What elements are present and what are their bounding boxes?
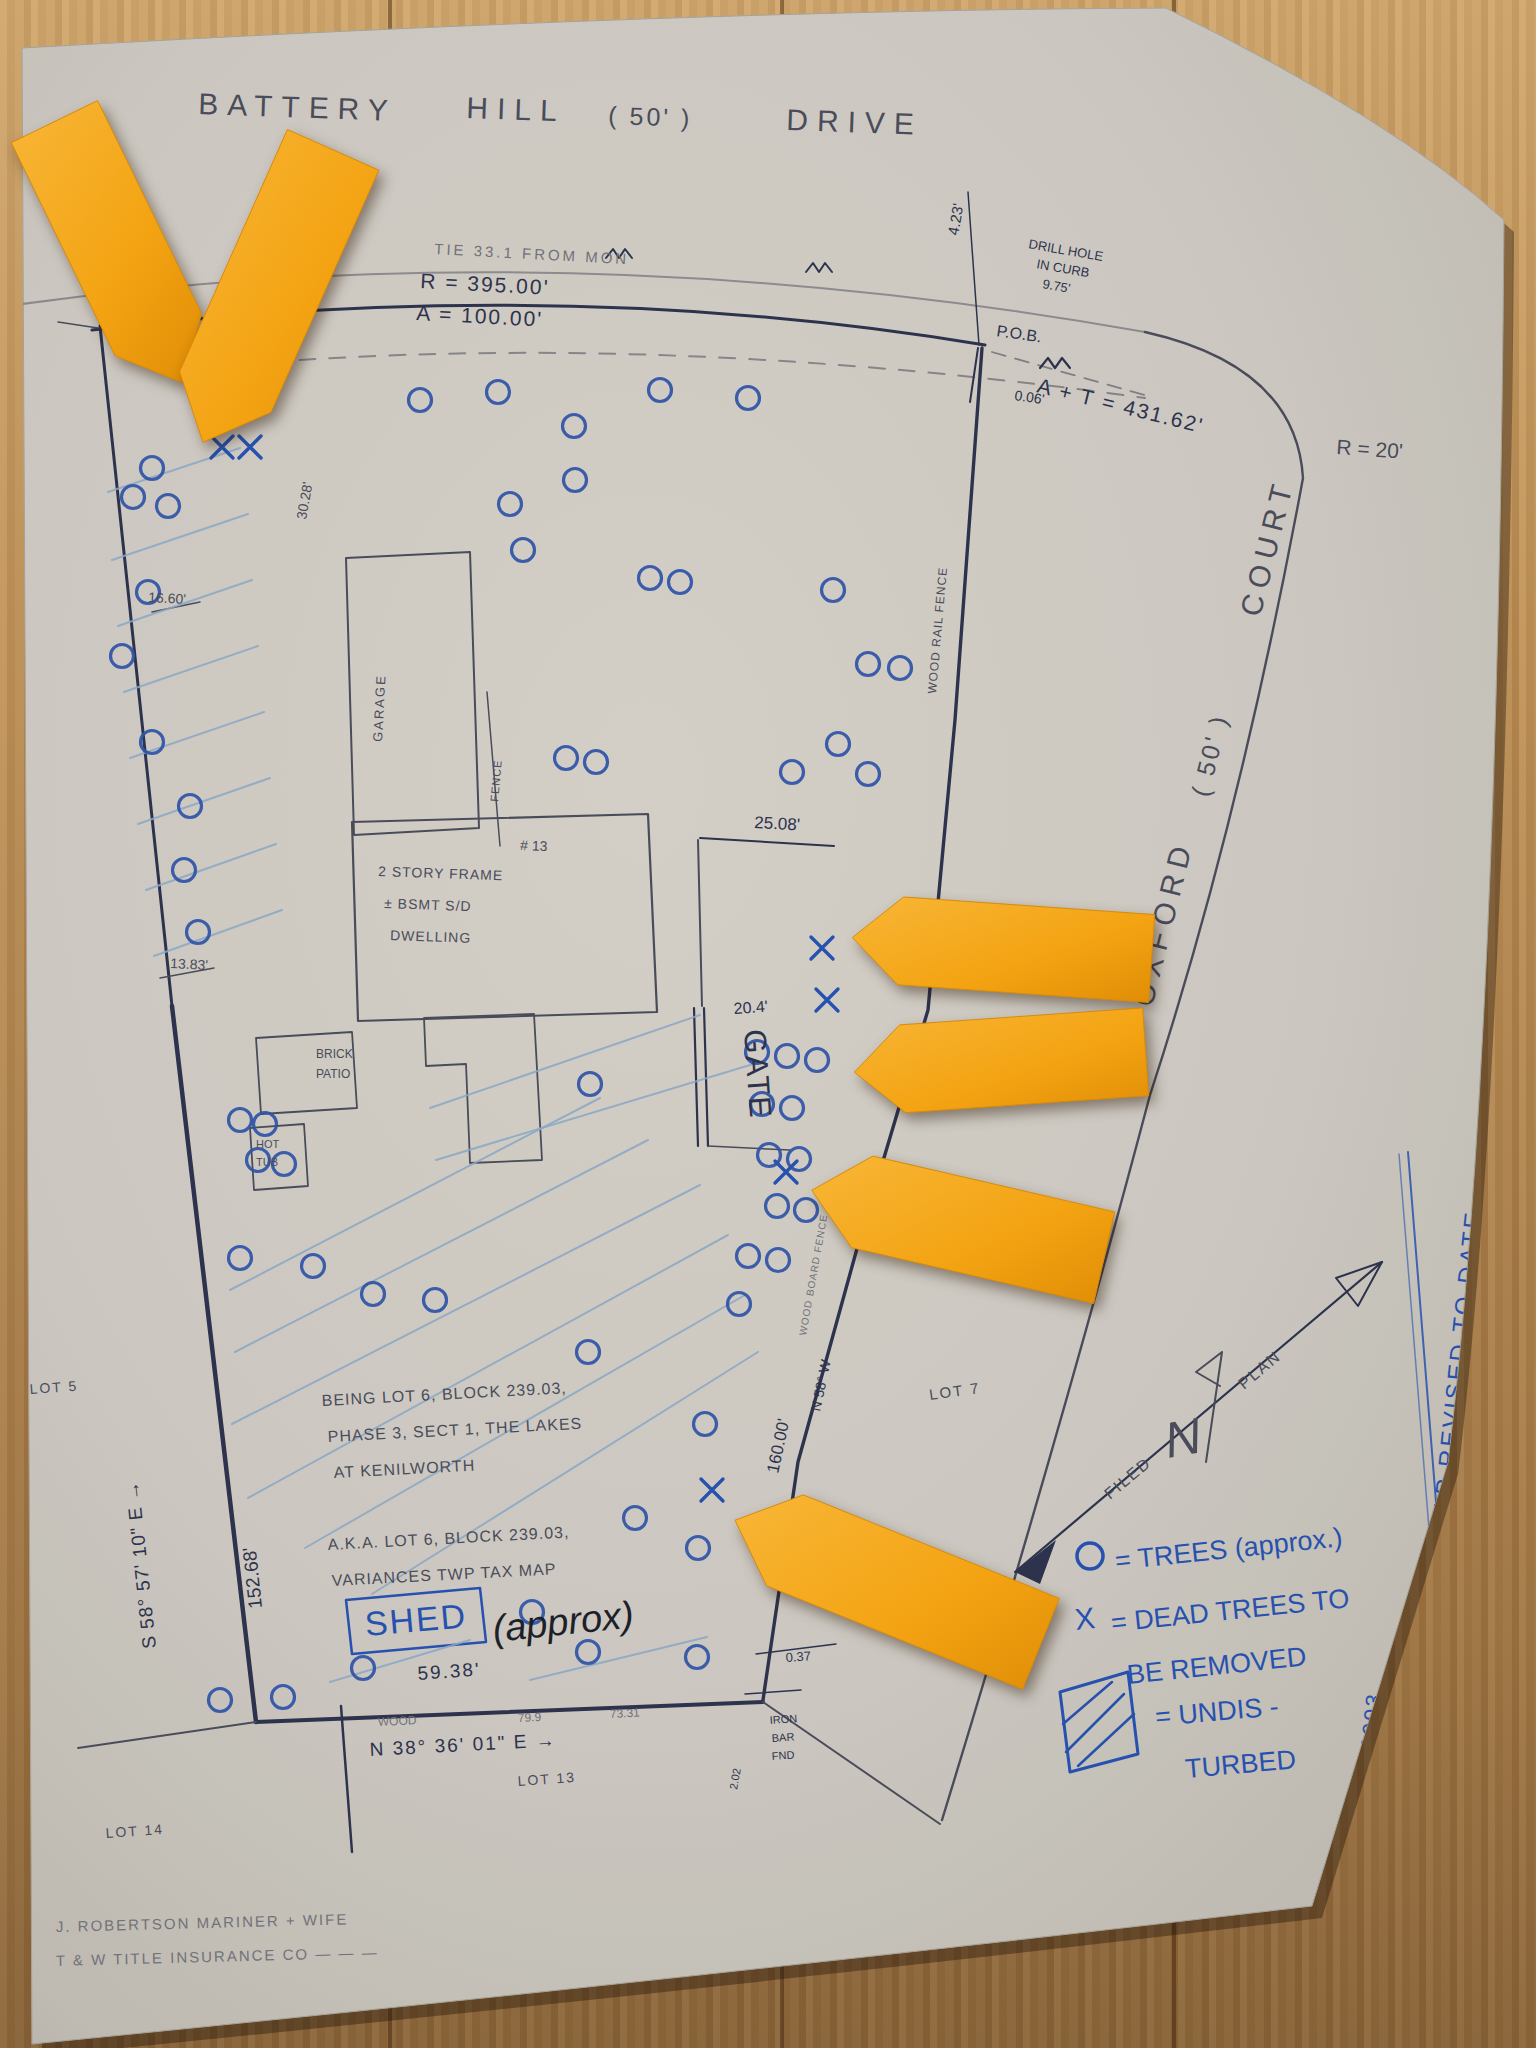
iron-bar-1: IRON [769, 1712, 797, 1726]
house-number: # 13 [520, 837, 548, 854]
brick-patio-2: PATIO [316, 1067, 350, 1081]
iron-bar-3: FND [771, 1748, 794, 1762]
street-name-drive: DRIVE [786, 103, 924, 141]
dim-79-9: 79.9 [517, 1710, 541, 1725]
street-name-battery: BATTERY [198, 87, 398, 127]
dim-13-83: 13.83' [170, 955, 209, 973]
dim-0-37: 0.37 [785, 1648, 811, 1665]
gate-label: GATE [737, 1028, 778, 1120]
dim-20-4: 20.4' [733, 998, 768, 1017]
legend-dead-symbol: X [1073, 1601, 1096, 1636]
street-name-hill: HILL [466, 91, 566, 127]
dim-16-60: 16.60' [148, 589, 187, 607]
dim-25-08: 25.08' [754, 813, 801, 834]
iron-bar-2: BAR [771, 1730, 794, 1744]
brick-patio-1: BRICK [316, 1047, 353, 1061]
survey-map-photo: BATTERYHILL( 50' )DRIVETIE 33.1 FROM MON… [0, 0, 1536, 2048]
fence-note-bottom: WOOD [377, 1713, 417, 1729]
street-width-50: ( 50' ) [608, 101, 693, 132]
dwelling-note-2: ± BSMT S/D [384, 895, 472, 914]
dim-73-31: 73.31 [609, 1705, 640, 1721]
hot-tub-1: HOT [256, 1138, 280, 1150]
lot-5-label: LOT 5 [29, 1378, 79, 1397]
dwelling-note-3: DWELLING [390, 927, 472, 946]
radius-20: R = 20' [1336, 435, 1404, 463]
dim-59-38: 59.38' [417, 1659, 481, 1684]
hot-tub-2: TUB [256, 1156, 278, 1168]
photo-of-survey-map: { "scene": "hand-drawn property survey p… [0, 0, 1536, 2048]
